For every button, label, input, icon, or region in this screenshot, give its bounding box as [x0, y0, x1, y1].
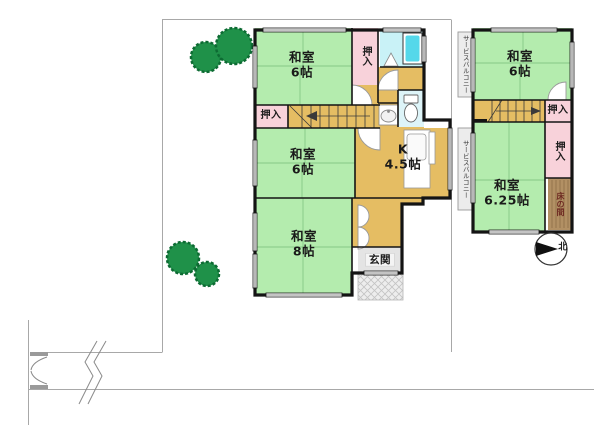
entrance-porch	[358, 273, 403, 300]
tree-icons	[167, 28, 252, 286]
washbasin-icon	[379, 105, 398, 125]
room-label-kitchen: K 4.5帖	[385, 142, 422, 172]
bathtub-icon	[403, 33, 422, 64]
toilet-icon	[404, 95, 418, 122]
closet-label-2f-a: 押入	[548, 105, 569, 117]
road-break-marks	[79, 341, 106, 404]
gate-icon	[30, 352, 48, 389]
closet-label-2f-b: 押入	[553, 141, 563, 161]
tokonoma-label: 床の間	[556, 192, 564, 216]
closet-label-upper: 押入	[360, 46, 370, 66]
entrance-label: 玄関	[365, 253, 395, 267]
room-label-washitsu6-mid: 和室 6帖	[290, 147, 316, 177]
room-label-washitsu6-2f: 和室 6帖	[507, 49, 533, 79]
service-balcony-label-bottom: サービスバルコニー	[462, 140, 469, 199]
floor-plan-canvas: 和室 6帖 押入 押入 和室 6帖 K 4.5帖 和室 8帖 玄関 和室 6帖 …	[0, 0, 600, 447]
room-label-washitsu6-top: 和室 6帖	[289, 50, 315, 80]
room-label-washitsu625: 和室 6.25帖	[484, 178, 530, 208]
closet-label-stairs: 押入	[261, 110, 282, 122]
room-label-washitsu8: 和室 8帖	[291, 229, 317, 259]
service-balcony-label-top: サービスバルコニー	[462, 35, 469, 94]
north-label: 北	[558, 243, 568, 254]
